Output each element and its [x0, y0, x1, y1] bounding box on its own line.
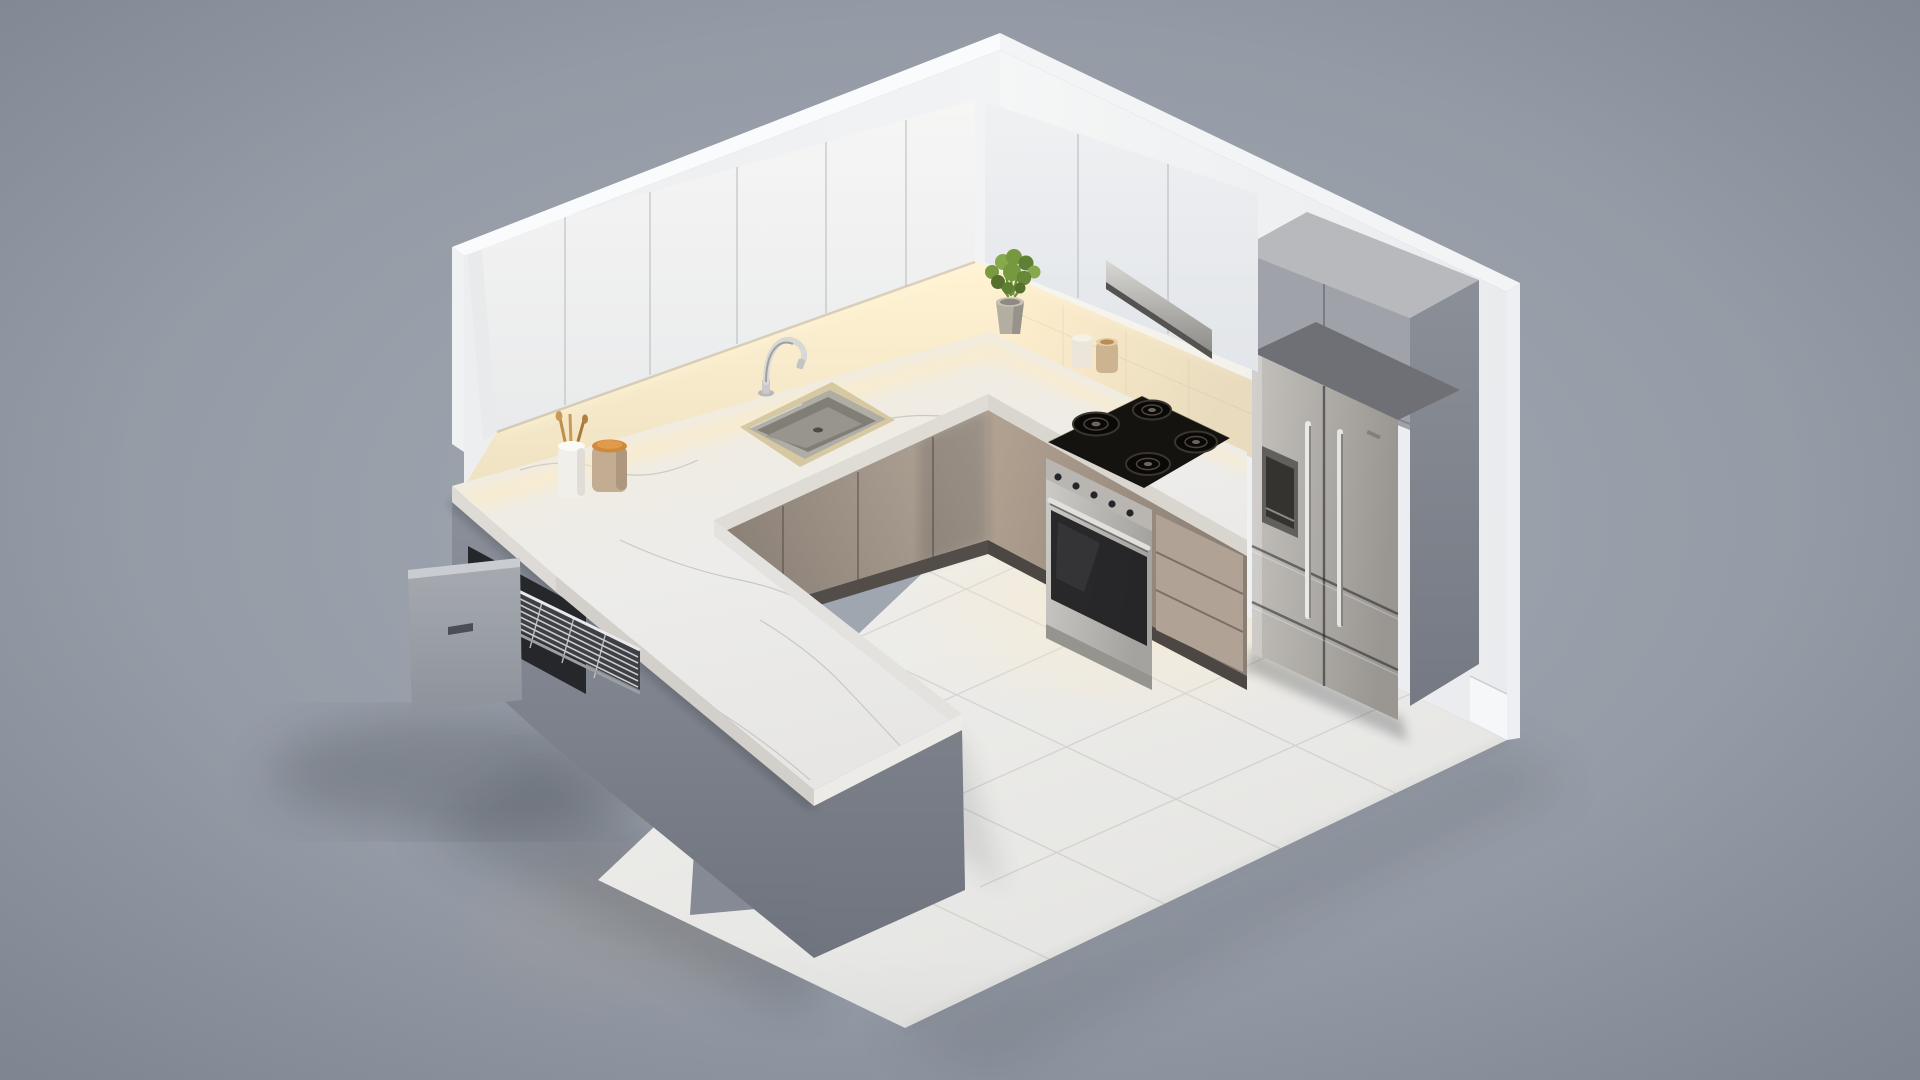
- vignette: [0, 0, 1920, 1080]
- kitchen-render: [0, 0, 1920, 1080]
